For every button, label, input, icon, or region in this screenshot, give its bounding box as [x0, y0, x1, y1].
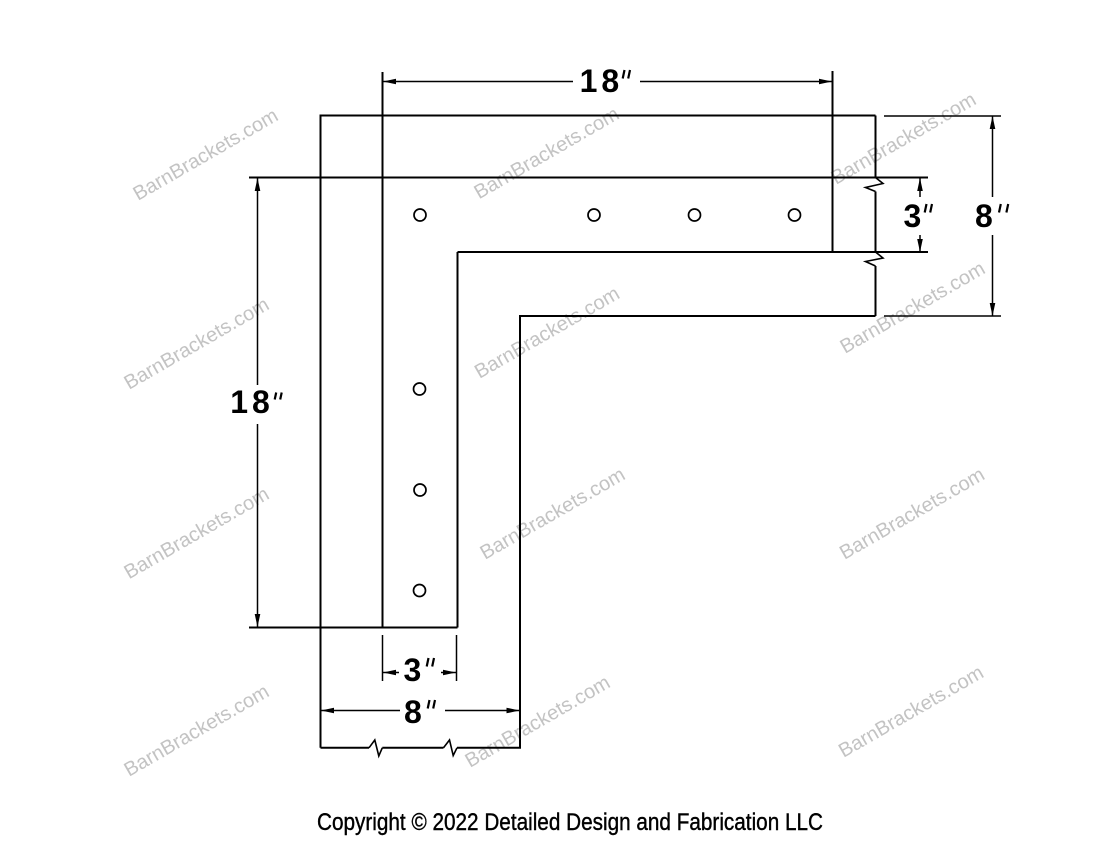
- svg-text:BarnBrackets.com: BarnBrackets.com: [828, 89, 981, 190]
- svg-text:BarnBrackets.com: BarnBrackets.com: [471, 103, 624, 204]
- svg-text:3: 3: [904, 198, 922, 234]
- svg-text:8: 8: [975, 198, 993, 234]
- svg-text:BarnBrackets.com: BarnBrackets.com: [835, 662, 988, 763]
- svg-text:BarnBrackets.com: BarnBrackets.com: [836, 464, 989, 565]
- svg-text:BarnBrackets.com: BarnBrackets.com: [121, 294, 274, 395]
- svg-text:BarnBrackets.com: BarnBrackets.com: [121, 483, 274, 584]
- svg-text:BarnBrackets.com: BarnBrackets.com: [121, 681, 274, 782]
- svg-text:Copyright © 2022 Detailed Desi: Copyright © 2022 Detailed Design and Fab…: [317, 809, 823, 836]
- svg-text:BarnBrackets.com: BarnBrackets.com: [477, 464, 630, 565]
- svg-text:18: 18: [580, 63, 624, 99]
- svg-text:BarnBrackets.com: BarnBrackets.com: [471, 283, 624, 384]
- svg-text:8: 8: [404, 694, 422, 730]
- svg-text:3: 3: [404, 652, 422, 688]
- svg-text:BarnBrackets.com: BarnBrackets.com: [837, 258, 990, 359]
- svg-text:BarnBrackets.com: BarnBrackets.com: [462, 672, 615, 773]
- svg-text:18: 18: [230, 384, 274, 420]
